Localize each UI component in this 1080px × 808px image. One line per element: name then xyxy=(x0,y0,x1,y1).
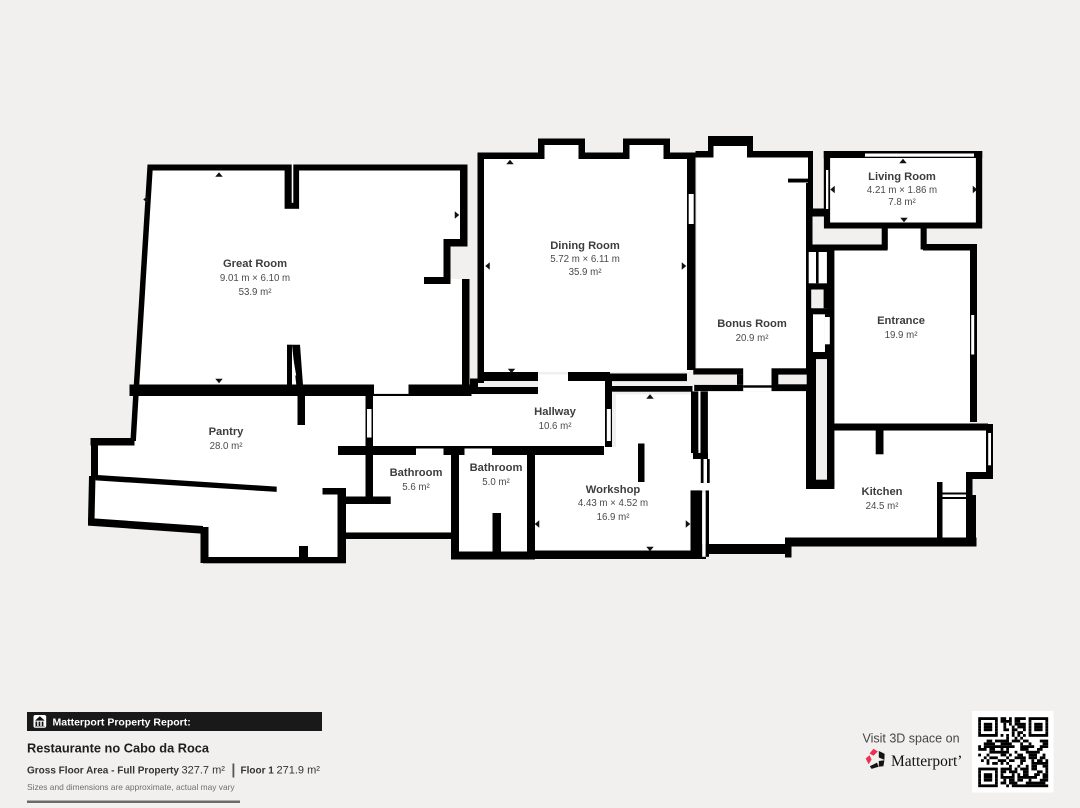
svg-text:Gross Floor Area - Full Proper: Gross Floor Area - Full Property xyxy=(27,766,179,777)
svg-text:Sizes and dimensions are appro: Sizes and dimensions are approximate, ac… xyxy=(27,782,235,792)
svg-text:Entrance: Entrance xyxy=(877,315,925,327)
svg-text:10.6 m²: 10.6 m² xyxy=(539,421,573,432)
svg-text:Bathroom: Bathroom xyxy=(390,467,443,479)
svg-text:9.01 m × 6.10 m: 9.01 m × 6.10 m xyxy=(220,273,290,284)
svg-text:327.7 m²: 327.7 m² xyxy=(182,765,226,777)
svg-text:28.0 m²: 28.0 m² xyxy=(210,441,244,452)
svg-text:Matterport’: Matterport’ xyxy=(891,753,962,770)
svg-text:Bathroom: Bathroom xyxy=(470,462,523,474)
svg-text:271.9 m²: 271.9 m² xyxy=(277,765,321,777)
svg-text:20.9 m²: 20.9 m² xyxy=(736,333,770,344)
svg-text:Workshop: Workshop xyxy=(586,484,641,496)
svg-text:Bonus Room: Bonus Room xyxy=(717,318,787,330)
svg-text:7.8 m²: 7.8 m² xyxy=(888,197,916,208)
svg-text:53.9 m²: 53.9 m² xyxy=(239,287,273,298)
svg-text:Restaurante no Cabo da Roca: Restaurante no Cabo da Roca xyxy=(27,741,210,756)
svg-text:19.9 m²: 19.9 m² xyxy=(885,330,919,341)
svg-text:4.43 m × 4.52 m: 4.43 m × 4.52 m xyxy=(578,498,648,509)
svg-text:Great Room: Great Room xyxy=(223,258,287,270)
svg-text:24.5 m²: 24.5 m² xyxy=(866,501,900,512)
svg-text:Visit 3D space on: Visit 3D space on xyxy=(862,732,959,746)
svg-text:Floor 1: Floor 1 xyxy=(241,766,275,777)
svg-text:16.9 m²: 16.9 m² xyxy=(597,512,631,523)
svg-text:Pantry: Pantry xyxy=(209,426,245,438)
svg-text:5.0 m²: 5.0 m² xyxy=(482,477,510,488)
svg-text:35.9 m²: 35.9 m² xyxy=(569,267,603,278)
svg-text:Matterport Property Report:: Matterport Property Report: xyxy=(53,717,191,729)
svg-text:Dining Room: Dining Room xyxy=(550,240,620,252)
svg-text:Living Room: Living Room xyxy=(868,171,936,183)
svg-text:5.6 m²: 5.6 m² xyxy=(402,482,430,493)
svg-text:Hallway: Hallway xyxy=(534,406,576,418)
svg-text:4.21 m × 1.86 m: 4.21 m × 1.86 m xyxy=(867,185,937,196)
svg-text:Kitchen: Kitchen xyxy=(861,486,902,498)
svg-text:5.72 m × 6.11 m: 5.72 m × 6.11 m xyxy=(550,254,620,265)
